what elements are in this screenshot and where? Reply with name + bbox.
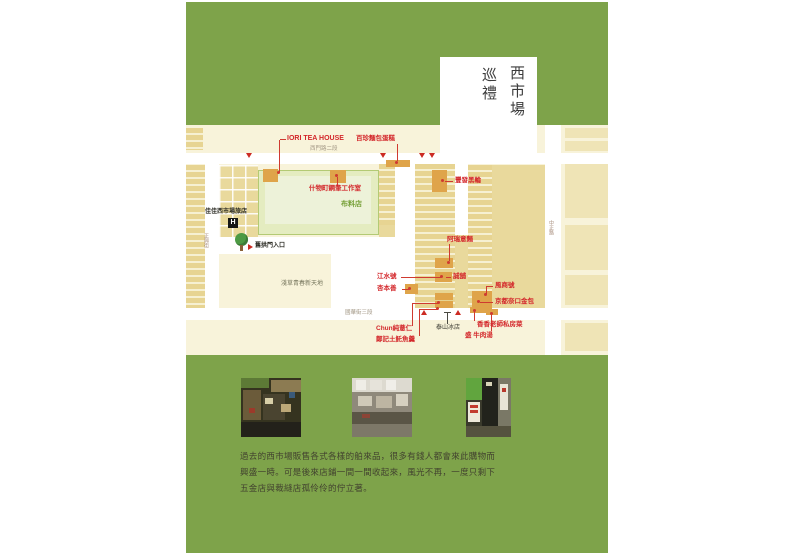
area-label-asakusa: 淺草青春新天地 bbox=[281, 281, 323, 287]
shop-block-arui bbox=[435, 258, 453, 268]
street-label-top: 西門路二段 bbox=[310, 147, 338, 153]
shop-block-feng bbox=[472, 291, 492, 299]
shop-block-baizhen bbox=[386, 160, 410, 167]
area-label-fabric-shop: 布料店 bbox=[341, 201, 362, 208]
shop-block-pen-studio bbox=[330, 170, 346, 183]
map-block bbox=[565, 275, 608, 305]
shop-label-chengpu: 誠舖 bbox=[453, 274, 466, 281]
street-zhongzheng-rd bbox=[545, 125, 561, 355]
photo-market-alley bbox=[466, 378, 511, 437]
map-block bbox=[565, 225, 608, 270]
shop-block-kyoto bbox=[472, 299, 492, 307]
title-box: 西市場 巡禮 bbox=[440, 57, 537, 155]
book-page-scan: 布料店 bbox=[0, 0, 792, 555]
map-block bbox=[186, 128, 203, 150]
caption-line-1: 過去的西市場販售各式各樣的舶來品，很多有錢人都會來此購物而 bbox=[240, 452, 495, 461]
shop-label-jiangshui: 江水號 bbox=[377, 274, 397, 281]
map-block bbox=[565, 323, 608, 351]
hotel-icon: H bbox=[228, 218, 238, 228]
shop-block-chun bbox=[435, 293, 453, 300]
shop-label-arui: 阿瑞意麵 bbox=[447, 237, 473, 244]
tree-trunk-icon bbox=[240, 245, 243, 251]
arrow-right-icon bbox=[248, 244, 253, 250]
map-block bbox=[565, 128, 608, 138]
shop-label-feng: 風商號 bbox=[495, 283, 515, 290]
street-label-bottom: 國華街三段 bbox=[345, 311, 373, 317]
shop-label-chun: Chun純薏仁 bbox=[376, 326, 412, 333]
shop-label-baizhen: 百珍麵包蛋糕 bbox=[356, 136, 395, 143]
poi-label-arch-entrance: 舊拱門入口 bbox=[255, 243, 285, 249]
caption-line-3: 五金店與裁縫店孤伶伶的佇立著。 bbox=[240, 484, 372, 493]
shop-label-pen-studio: 什物町鋼筆工作室 bbox=[309, 186, 361, 193]
poi-label-hotel: 佳佳西市場旅店 bbox=[205, 209, 247, 215]
map-block-hotel-cluster bbox=[219, 165, 258, 237]
shop-label-kyoto: 京都奈口金包 bbox=[495, 299, 534, 306]
west-market-map: 布料店 bbox=[186, 125, 608, 355]
map-block bbox=[455, 235, 468, 308]
entrance-marker-icon bbox=[429, 153, 435, 158]
page-title: 西市場 bbox=[508, 65, 523, 119]
street-label-right: 中正路 bbox=[548, 220, 553, 235]
entrance-marker-icon bbox=[455, 310, 461, 315]
poi-label-taishan-ice: 泰山冰店 bbox=[436, 325, 460, 331]
entrance-marker-icon bbox=[380, 153, 386, 158]
map-block bbox=[565, 158, 608, 218]
photo-market-stall bbox=[352, 378, 412, 437]
street-label-left: 正興街 bbox=[203, 233, 208, 248]
shop-label-fengfa: 豐發黑輪 bbox=[455, 178, 481, 185]
shop-label-sheng-beef: 盛 牛肉湯 bbox=[465, 333, 493, 340]
green-page: 布料店 bbox=[186, 2, 608, 553]
caption-line-2: 興盛一時。可是後來店鋪一間一間收起來，風光不再，一度只剩下 bbox=[240, 468, 495, 477]
shop-block-iori bbox=[263, 169, 278, 182]
shop-label-iori: IORI TEA HOUSE bbox=[287, 135, 344, 142]
entrance-marker-icon bbox=[421, 310, 427, 315]
entrance-marker-icon bbox=[246, 153, 252, 158]
market-plaza bbox=[331, 237, 415, 308]
shop-label-zhengji: 鄭記土魠魚羹 bbox=[376, 337, 415, 344]
photo-secondhand-shop bbox=[241, 378, 301, 437]
street-market-alley-2 bbox=[455, 164, 468, 235]
map-block bbox=[565, 141, 608, 151]
entrance-marker-icon bbox=[419, 153, 425, 158]
page-subtitle: 巡禮 bbox=[480, 67, 495, 103]
shop-label-xingbenshan: 杏本善 bbox=[377, 286, 397, 293]
shop-label-xiangxiang: 香香老師私房菜 bbox=[477, 322, 523, 329]
